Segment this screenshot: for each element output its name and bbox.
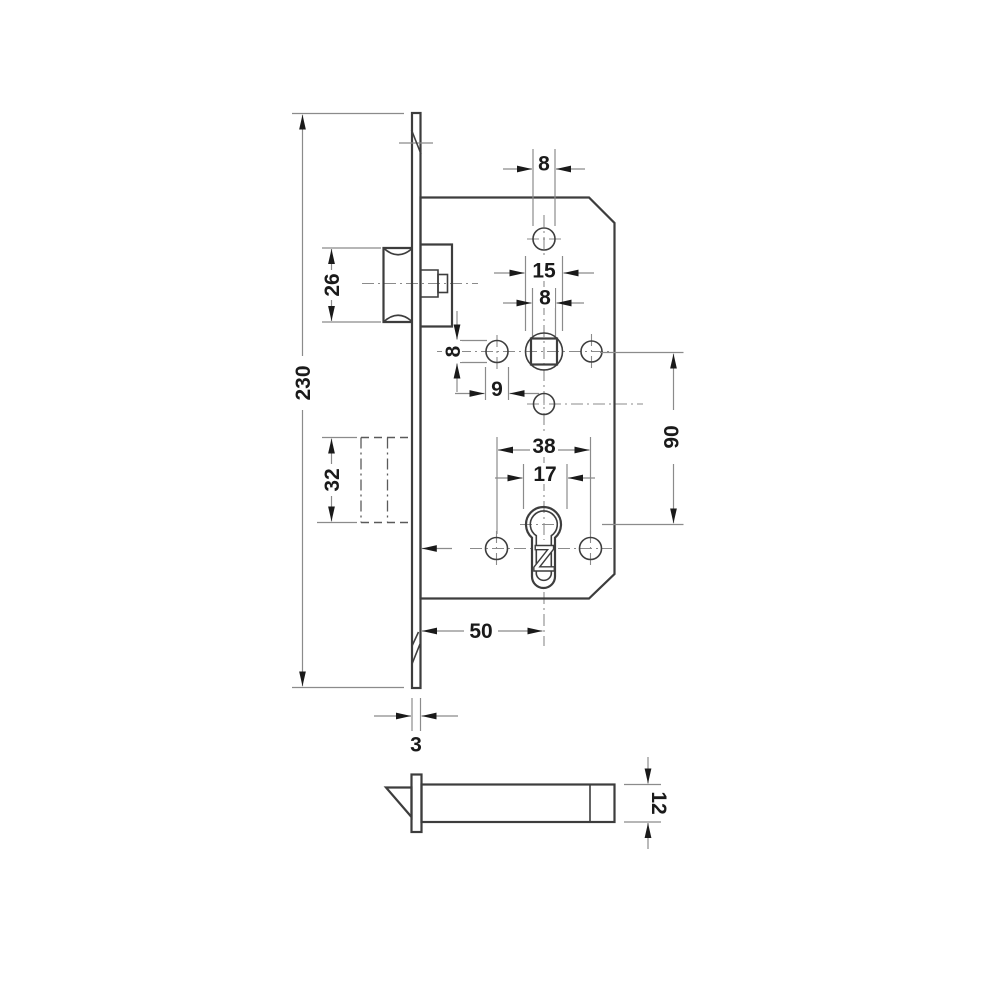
dim-faceplate-thickness-label: 3 xyxy=(410,734,422,757)
dim-side-hole-height-label: 8 xyxy=(442,345,465,357)
dim-handle-to-cylinder-label: 90 xyxy=(661,425,684,448)
dim-backset-label: 50 xyxy=(469,620,492,643)
dim-cylinder-hole-spacing-label: 38 xyxy=(532,435,556,458)
dim-deadbolt-height-label: 32 xyxy=(321,468,344,491)
dim-follower-label: 15 xyxy=(532,260,556,283)
cylinder-brand-mark: Z xyxy=(533,538,556,579)
dim-spindle-square-label: 8 xyxy=(539,287,551,310)
dim-overall-height-label: 230 xyxy=(292,365,315,400)
dim-case-depth-label: 12 xyxy=(647,791,670,814)
background xyxy=(0,0,1000,1000)
dim-cylinder-width-label: 17 xyxy=(533,463,556,486)
mortise-lock-drawing: Z xyxy=(0,0,1000,1000)
drawing-canvas: Z xyxy=(0,0,1000,1000)
dim-side-hole-width-label: 9 xyxy=(491,378,503,401)
dim-latch-height-label: 26 xyxy=(321,273,344,296)
dim-top-hole-label: 8 xyxy=(538,153,550,176)
